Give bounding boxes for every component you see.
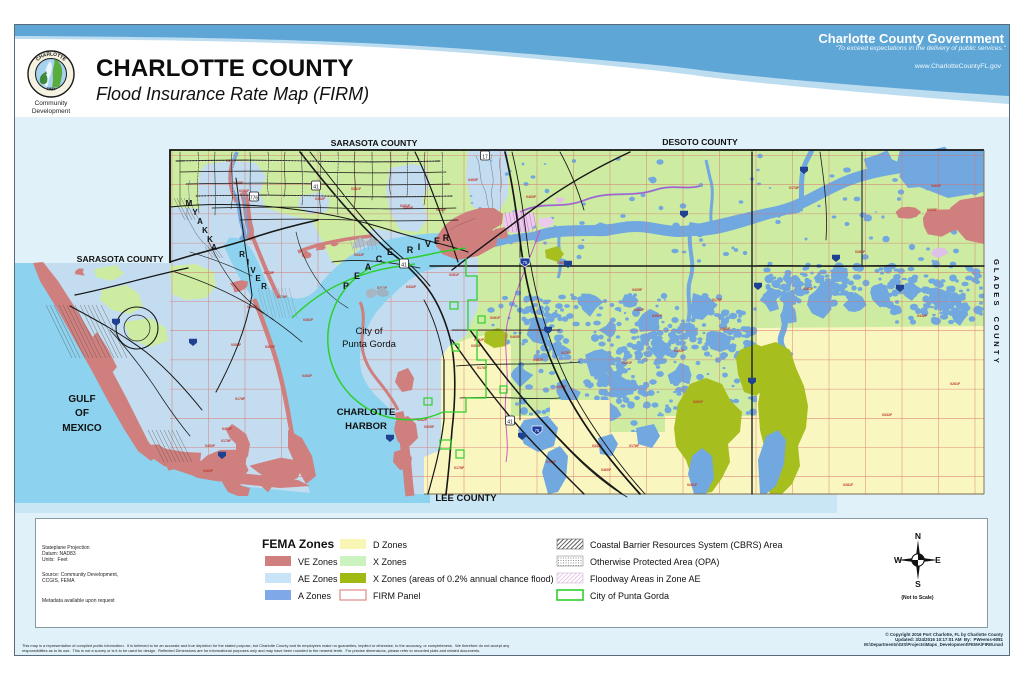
svg-text:0452F: 0452F [674,349,685,353]
svg-text:41: 41 [507,420,513,426]
svg-text:Floodway Areas in Zone AE: Floodway Areas in Zone AE [590,574,701,584]
svg-text:LEE COUNTY: LEE COUNTY [435,493,497,504]
svg-text:0452F: 0452F [634,308,645,312]
svg-text:T: T [992,350,1001,355]
svg-text:P: P [343,281,349,291]
svg-text:75: 75 [523,260,528,265]
svg-text:0332F: 0332F [406,285,417,289]
svg-text:X Zones: X Zones [373,557,407,567]
svg-text:0178F: 0178F [235,397,246,401]
svg-text:41: 41 [401,263,407,269]
svg-text:0281F: 0281F [490,316,501,320]
svg-text:OF: OF [75,408,89,419]
svg-text:C: C [376,254,383,264]
svg-text:A: A [211,243,217,252]
svg-text:A: A [992,276,1001,282]
svg-text:A Zones: A Zones [298,591,332,601]
svg-text:0178F: 0178F [629,444,640,448]
svg-text:0460F: 0460F [601,468,612,472]
svg-text:0452F: 0452F [652,314,663,318]
svg-text:0460F: 0460F [403,206,414,210]
svg-text:E: E [434,236,440,246]
svg-text:0460F: 0460F [720,327,731,331]
svg-text:AE Zones: AE Zones [298,574,338,584]
svg-text:E: E [935,555,941,565]
svg-text:0281F: 0281F [950,382,961,386]
svg-text:0305F: 0305F [927,208,938,212]
svg-text:CHARLOTTE: CHARLOTTE [337,407,396,418]
svg-text:0281F: 0281F [449,273,460,277]
svg-text:0178F: 0178F [221,439,232,443]
svg-text:FEMA Zones: FEMA Zones [262,537,335,551]
svg-text:0305F: 0305F [632,288,643,292]
svg-text:0452F: 0452F [533,358,544,362]
svg-text:0178F: 0178F [712,298,723,302]
svg-text:HARBOR: HARBOR [345,421,387,432]
svg-text:VE Zones: VE Zones [298,557,338,567]
svg-text:A: A [197,217,203,226]
svg-text:0460F: 0460F [205,444,216,448]
svg-text:0460F: 0460F [510,335,521,339]
svg-text:0281F: 0281F [239,189,250,193]
svg-text:M: M [186,199,193,208]
svg-text:0452F: 0452F [222,427,233,431]
svg-text:I: I [418,242,421,252]
svg-text:D: D [992,284,1001,290]
svg-text:0332F: 0332F [354,253,365,257]
svg-text:0281F: 0281F [622,361,633,365]
svg-text:Coastal Barrier Resources Syst: Coastal Barrier Resources System (CBRS) … [590,540,783,550]
svg-text:R: R [443,233,450,243]
svg-text:City of: City of [356,326,383,337]
svg-text:0452F: 0452F [303,318,314,322]
svg-text:GULF: GULF [68,394,95,405]
svg-text:Otherwise Protected Area (OPA): Otherwise Protected Area (OPA) [590,557,719,567]
svg-text:G: G [992,259,1001,265]
svg-text:V: V [425,239,431,249]
svg-text:SARASOTA COUNTY: SARASOTA COUNTY [331,138,418,148]
svg-text:C: C [992,317,1001,323]
svg-text:0281F: 0281F [855,250,866,254]
svg-text:0178F: 0178F [454,466,465,470]
svg-text:0178F: 0178F [264,271,275,275]
svg-text:0460F: 0460F [931,184,942,188]
svg-text:0305F: 0305F [265,345,276,349]
svg-text:776: 776 [250,196,259,202]
svg-text:S: S [915,579,921,589]
svg-text:0281F: 0281F [351,187,362,191]
svg-text:R: R [261,282,267,291]
svg-text:City of Punta Gorda: City of Punta Gorda [590,591,669,601]
svg-text:SARASOTA COUNTY: SARASOTA COUNTY [77,254,164,264]
svg-text:0281F: 0281F [693,400,704,404]
svg-text:MEXICO: MEXICO [62,423,102,434]
svg-text:A: A [365,262,372,272]
svg-text:W: W [894,555,903,565]
svg-text:U: U [992,333,1001,338]
svg-text:75: 75 [535,428,540,433]
svg-text:E: E [992,292,1001,297]
svg-text:Y: Y [192,208,198,217]
svg-text:X Zones (areas of 0.2% annual: X Zones (areas of 0.2% annual chance flo… [373,574,554,584]
svg-text:0305F: 0305F [424,425,435,429]
svg-text:0460F: 0460F [526,195,537,199]
svg-text:0281F: 0281F [843,483,854,487]
svg-text:Y: Y [992,358,1001,363]
svg-text:0332F: 0332F [882,413,893,417]
svg-text:R: R [407,245,414,255]
svg-text:0178F: 0178F [561,351,572,355]
svg-text:N: N [992,341,1001,346]
svg-text:0281F: 0281F [803,287,814,291]
svg-text:FIRM Panel: FIRM Panel [373,591,421,601]
svg-text:E: E [387,247,393,257]
svg-text:L: L [992,268,1001,273]
svg-text:R: R [239,250,245,259]
svg-text:0178F: 0178F [789,186,800,190]
svg-text:K: K [202,226,208,235]
svg-text:17: 17 [482,155,488,161]
svg-text:S: S [992,300,1001,305]
svg-text:DESOTO COUNTY: DESOTO COUNTY [662,137,738,147]
svg-text:1921: 1921 [46,86,56,92]
svg-text:0281F: 0281F [687,483,698,487]
svg-text:0452F: 0452F [302,374,313,378]
svg-text:E: E [354,271,360,281]
svg-text:D Zones: D Zones [373,540,408,550]
svg-text:0332F: 0332F [917,314,928,318]
svg-text:0178F: 0178F [277,295,288,299]
svg-text:0460F: 0460F [468,178,479,182]
svg-text:Punta Gorda: Punta Gorda [342,339,397,350]
svg-text:N: N [915,531,921,541]
svg-text:I: I [247,258,249,267]
svg-text:0460F: 0460F [203,469,214,473]
svg-text:0452F: 0452F [315,197,326,201]
svg-text:O: O [992,325,1001,331]
svg-text:41: 41 [313,185,319,191]
svg-text:0305F: 0305F [231,343,242,347]
